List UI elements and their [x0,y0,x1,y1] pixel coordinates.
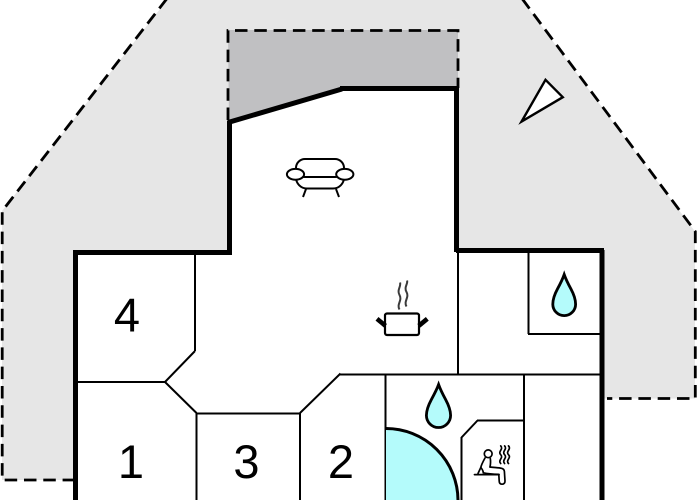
svg-text:3: 3 [233,435,259,488]
svg-text:1: 1 [118,435,144,488]
svg-text:2: 2 [328,435,354,488]
svg-text:4: 4 [114,289,140,342]
